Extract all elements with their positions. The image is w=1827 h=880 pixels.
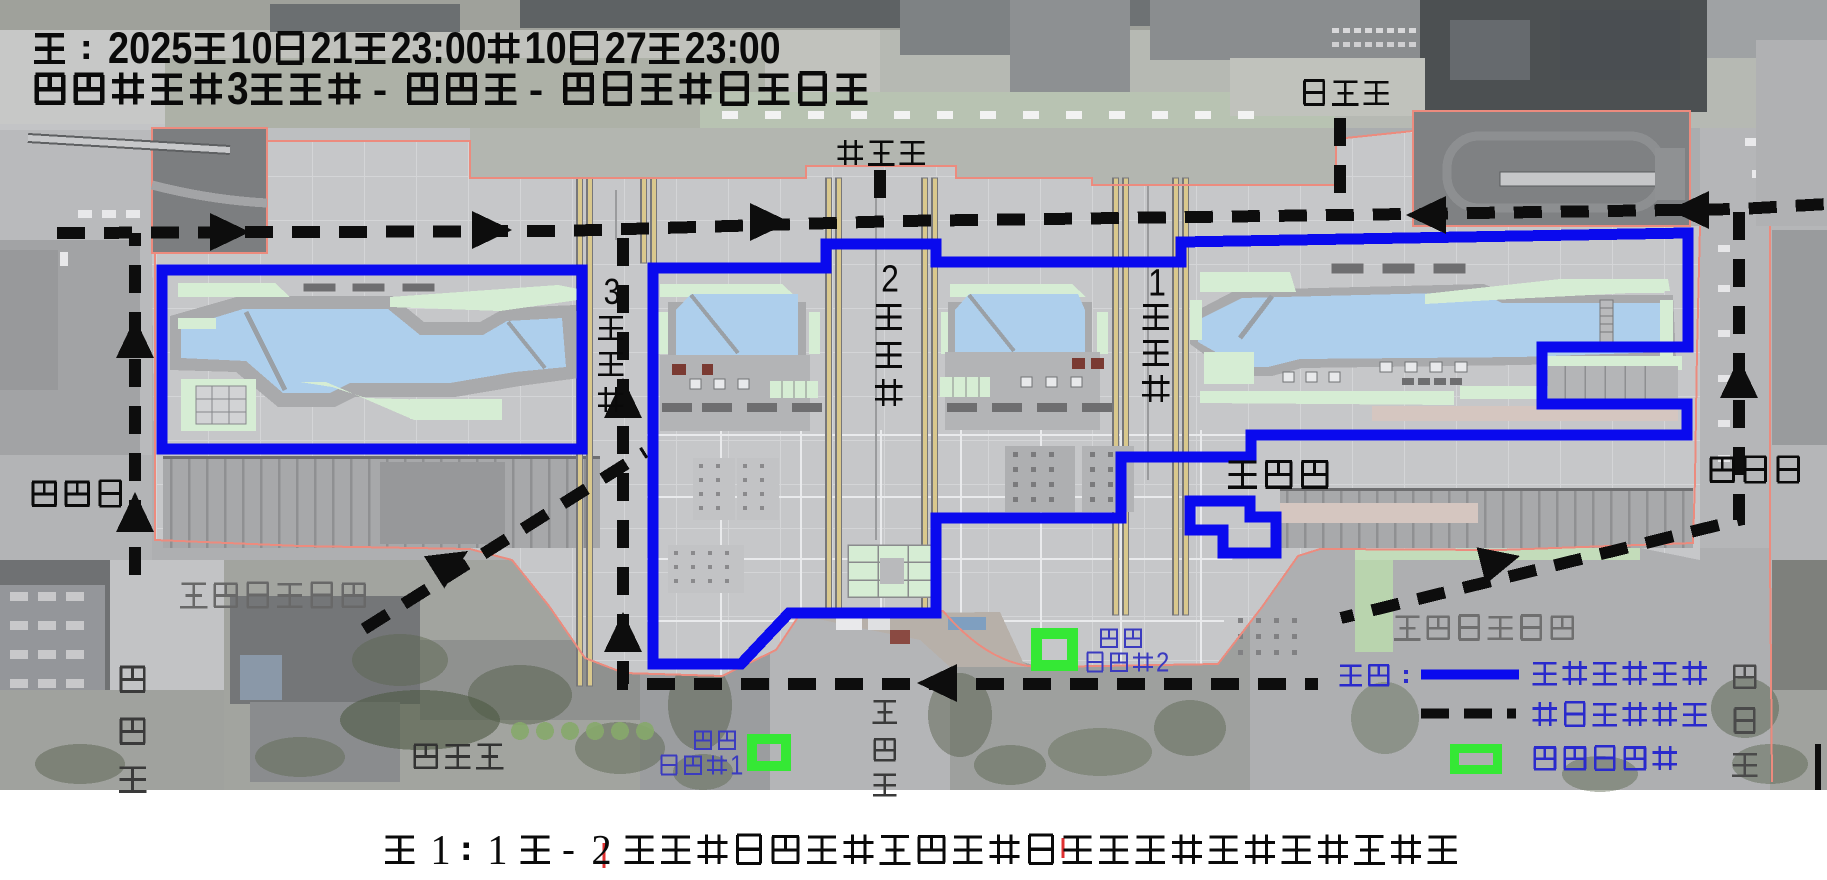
svg-text:2025: 2025 (108, 24, 192, 73)
svg-text:21: 21 (311, 24, 353, 73)
svg-text:3: 3 (604, 271, 621, 312)
svg-text:2: 2 (1156, 647, 1169, 678)
svg-text:2: 2 (881, 258, 899, 301)
svg-text:23:00: 23:00 (685, 24, 781, 73)
svg-text:1: 1 (1148, 262, 1166, 305)
svg-text:1: 1 (430, 827, 450, 874)
svg-text:23:00: 23:00 (391, 24, 487, 73)
svg-text:3: 3 (227, 63, 249, 114)
svg-text:10: 10 (525, 24, 567, 73)
svg-text:27: 27 (605, 24, 647, 73)
svg-text:1: 1 (487, 827, 507, 874)
svg-text:2: 2 (591, 827, 611, 874)
svg-text:1: 1 (730, 750, 743, 781)
